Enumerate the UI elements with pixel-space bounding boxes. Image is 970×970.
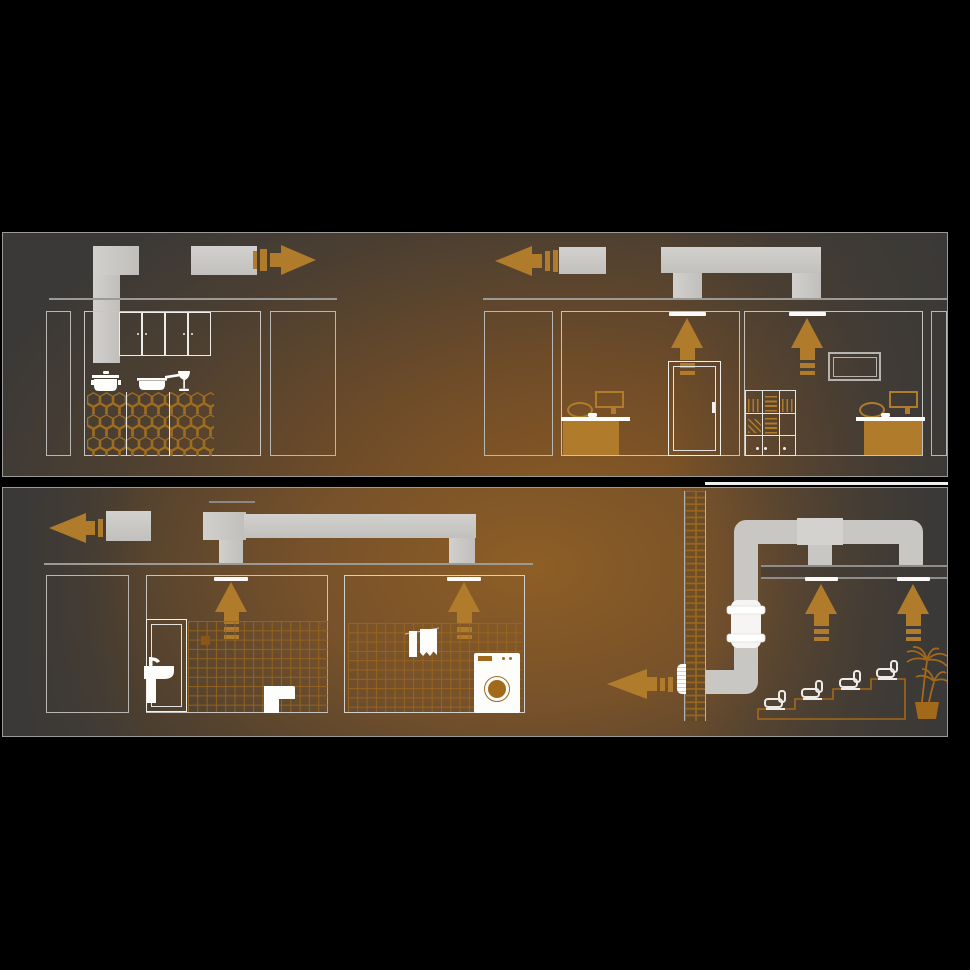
- monitor-icon: [595, 391, 624, 408]
- desk: [864, 421, 922, 455]
- hex-tiled-counter: [87, 392, 214, 456]
- exhaust-duct: [106, 511, 151, 541]
- seat-icon: [763, 687, 789, 711]
- tv-screen: [833, 357, 877, 377]
- cabinet-door: [142, 312, 165, 356]
- washing-machine-icon: [474, 653, 520, 713]
- wall-tiles: [188, 621, 328, 712]
- exhaust-duct: [559, 247, 606, 274]
- office-door: [668, 361, 721, 456]
- desk: [563, 421, 619, 455]
- duct-tee: [797, 518, 843, 545]
- wall-section: [484, 311, 553, 456]
- books-icon: [748, 399, 761, 412]
- mouse-icon: [881, 413, 890, 417]
- ceiling-vent: [447, 577, 481, 581]
- seat-icon: [875, 657, 901, 681]
- shelf-divider: [762, 391, 763, 455]
- wall-section: [931, 311, 947, 456]
- tv-frame: [828, 352, 881, 381]
- cabinet-knob: [783, 447, 786, 450]
- door-panel: [673, 366, 716, 451]
- roof-line: [705, 482, 948, 485]
- counter-divider: [169, 392, 170, 456]
- cabinet-door: [188, 312, 211, 356]
- extract-arrow-up-icon: [791, 318, 823, 375]
- cabinet-knob: [756, 447, 759, 450]
- stacked-files-icon: [765, 396, 777, 412]
- ceiling-line: [483, 298, 947, 300]
- airflow-arrow-right-icon: [253, 245, 316, 275]
- airflow-arrow-left-icon: [607, 669, 673, 699]
- airflow-arrow-left-icon: [495, 246, 558, 276]
- ceiling-duct-drop-right: [792, 272, 821, 298]
- exhaust-duct: [191, 246, 257, 275]
- washbasin-icon: [144, 657, 177, 703]
- ceiling-duct-run: [661, 247, 821, 273]
- airflow-arrow-left-icon: [49, 513, 111, 543]
- monitor-icon: [889, 391, 918, 408]
- toilet-icon: [264, 686, 296, 713]
- ceiling-line: [44, 563, 533, 565]
- books-icon: [782, 399, 795, 412]
- ceiling-duct-block-left: [203, 512, 246, 540]
- ceiling-vent: [669, 312, 706, 316]
- cabinet-door: [165, 312, 188, 356]
- ceiling-line: [49, 298, 337, 300]
- potted-palm-icon: [901, 644, 948, 720]
- washer-panel: [478, 656, 492, 661]
- counter-divider: [126, 392, 127, 456]
- panel-lower-floor: [2, 487, 948, 737]
- shelf-line: [746, 435, 795, 436]
- wall-section: [46, 311, 71, 456]
- illustration-canvas: [0, 0, 970, 970]
- wall-section: [270, 311, 336, 456]
- wall-cabinets: [119, 312, 211, 356]
- washer-door: [488, 680, 506, 698]
- ceiling-vent: [805, 577, 838, 581]
- washer-knob: [509, 657, 512, 660]
- cooking-pot-icon: [91, 371, 121, 392]
- shelf-line: [746, 413, 795, 414]
- wall-grille-icon: [677, 664, 686, 694]
- washer-knob: [502, 657, 505, 660]
- bookshelf: [745, 390, 796, 456]
- ceiling-vent: [214, 577, 248, 581]
- seat-icon: [838, 667, 864, 691]
- shelf-divider: [779, 391, 780, 455]
- ceiling-duct-drop-left: [219, 540, 243, 564]
- door-lock: [712, 402, 715, 413]
- extract-arrow-up-icon: [897, 584, 929, 641]
- cabinet-knob: [764, 447, 767, 450]
- cabinet-door: [119, 312, 142, 356]
- stacked-files-icon: [765, 418, 777, 434]
- towels-icon: [405, 627, 439, 660]
- cooker-hood-duct-top: [93, 246, 139, 275]
- wine-glass-icon: [177, 371, 191, 392]
- panel-upper-floor: [2, 232, 948, 477]
- ceiling-duct-drop-right: [449, 538, 475, 564]
- extract-arrow-up-icon: [805, 584, 837, 641]
- ceiling-duct-run: [244, 514, 476, 538]
- wall-section: [46, 575, 129, 713]
- ceiling-cavity: [761, 567, 948, 577]
- seat-icon: [800, 677, 826, 701]
- ceiling-vent: [789, 312, 826, 316]
- ceiling-vent: [897, 577, 930, 581]
- leaning-books-icon: [748, 419, 761, 433]
- mouse-icon: [588, 413, 597, 417]
- accent-tile: [201, 636, 210, 645]
- roof-deco-line: [209, 501, 255, 503]
